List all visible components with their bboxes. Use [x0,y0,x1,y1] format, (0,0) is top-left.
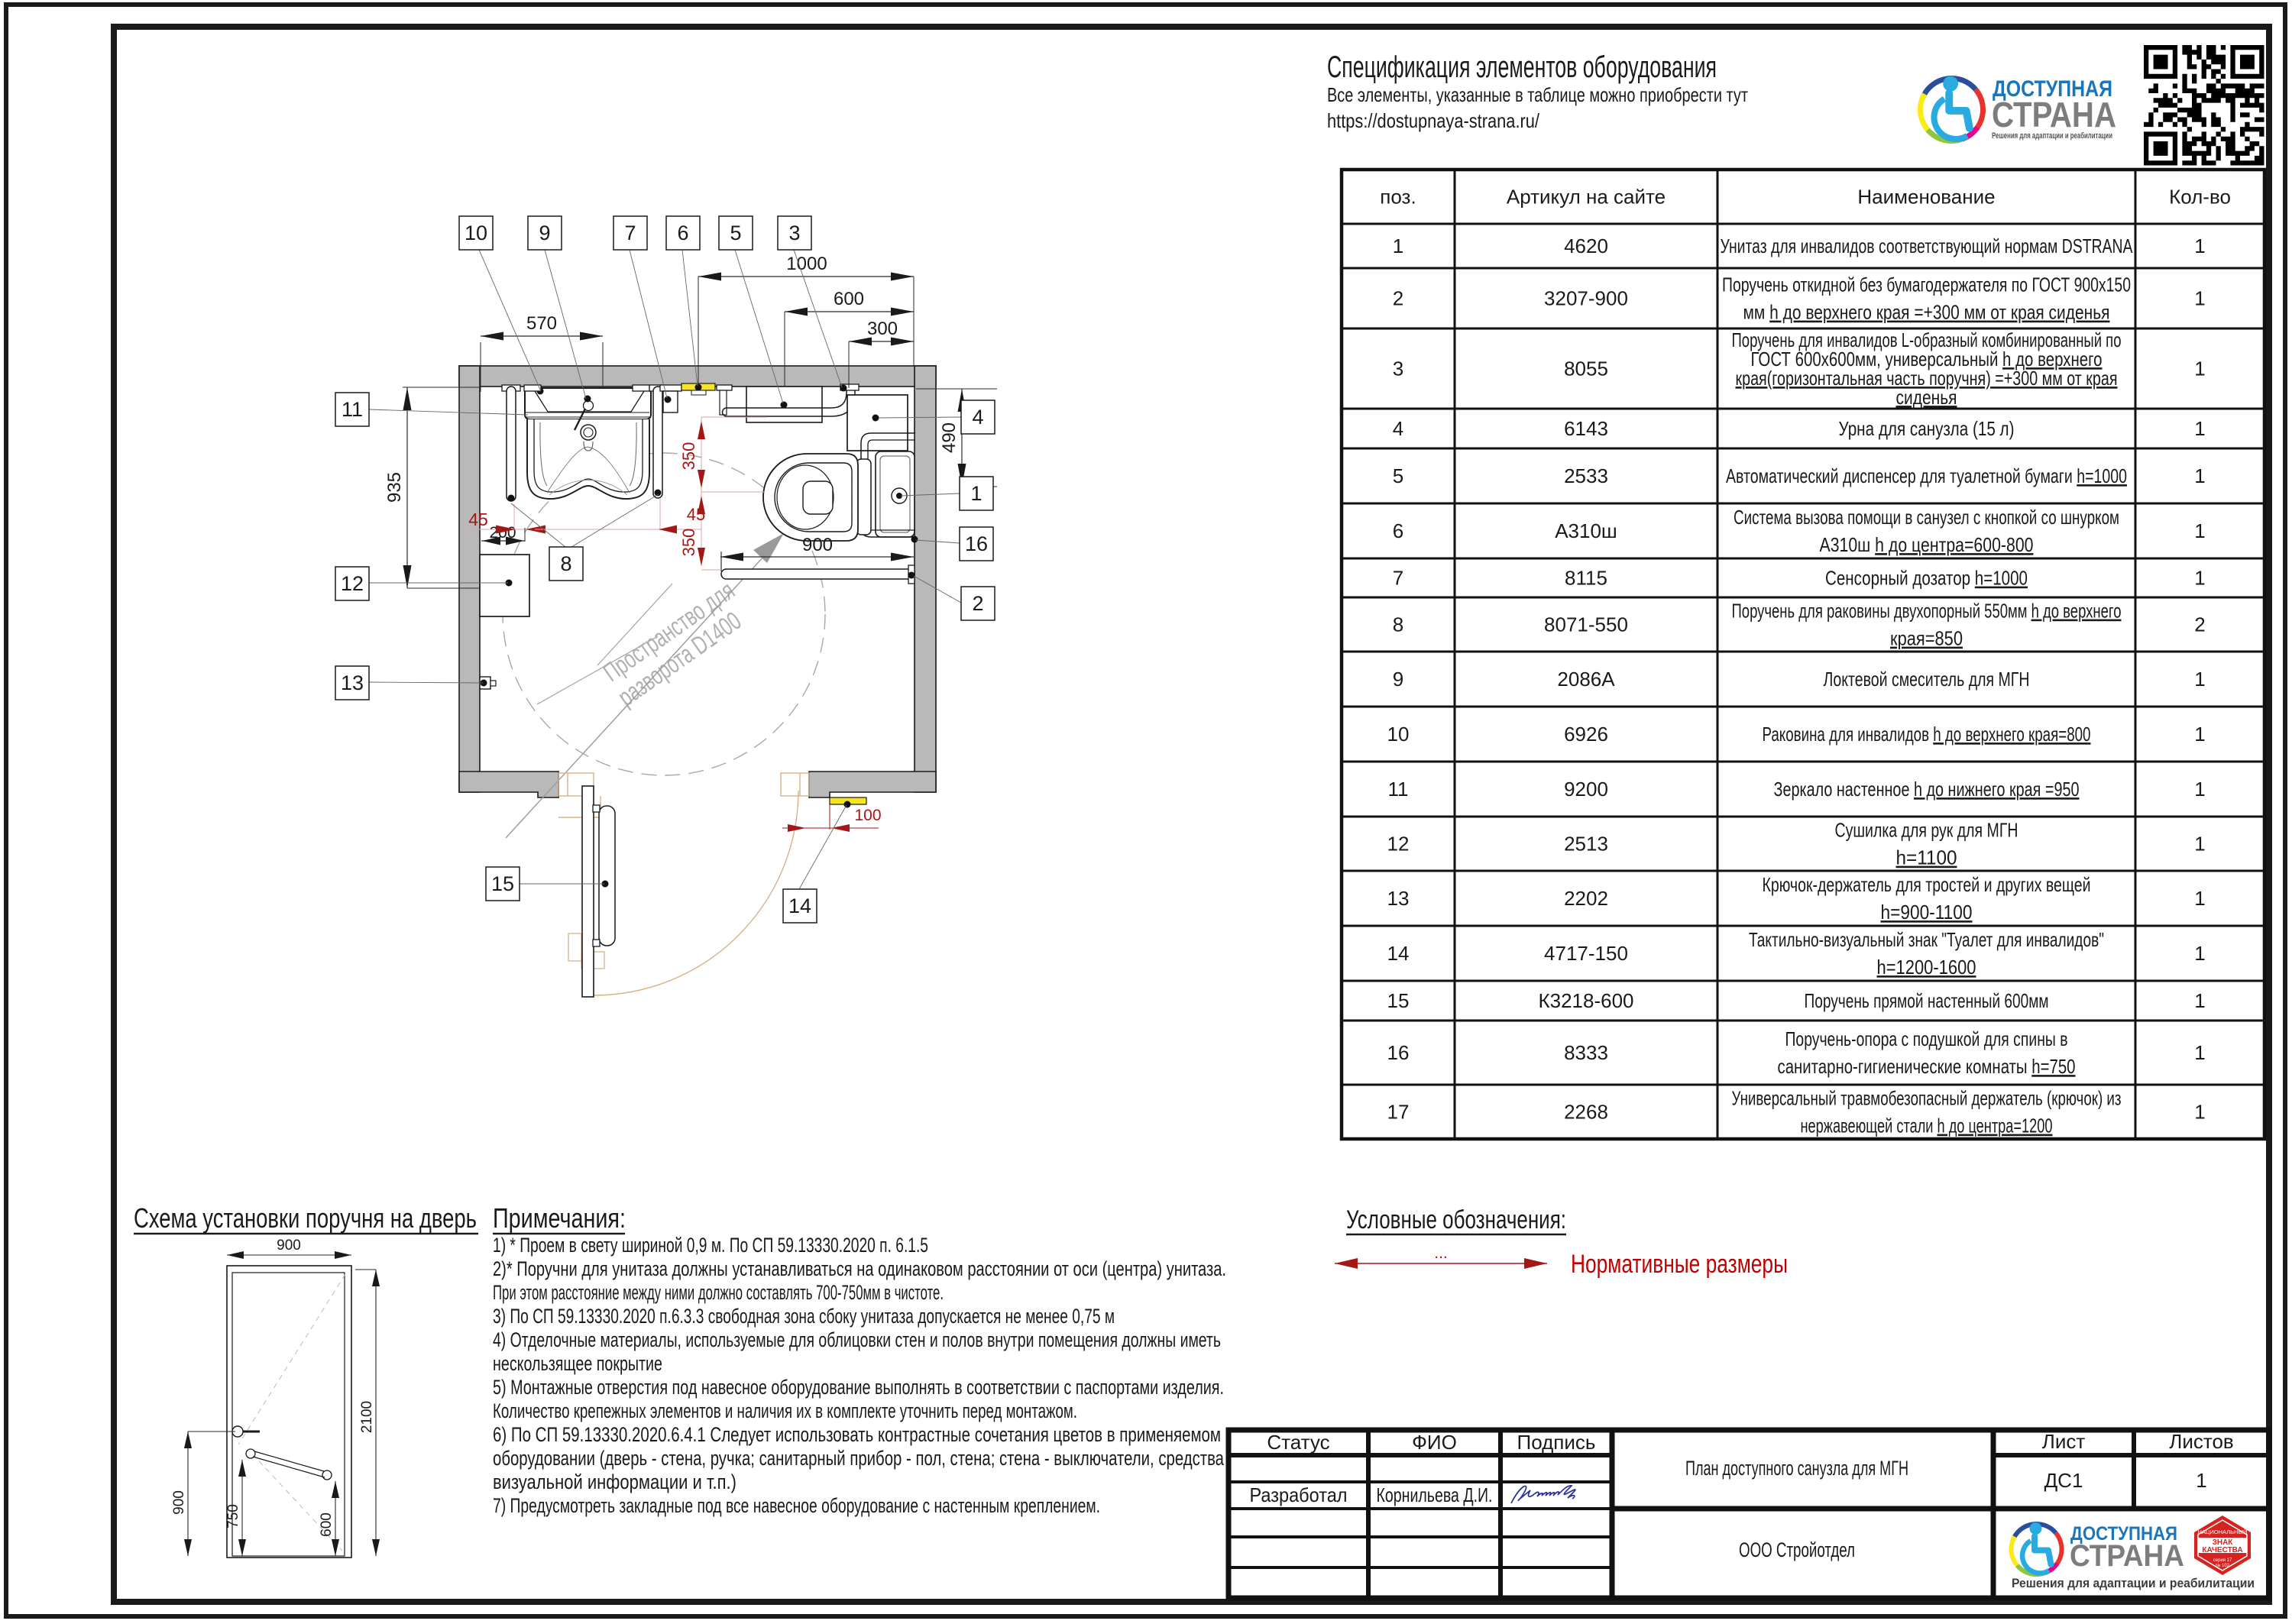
svg-text:8071-550: 8071-550 [1544,613,1628,636]
svg-text:3: 3 [1393,357,1403,380]
svg-text:100: 100 [854,807,881,824]
svg-text:1: 1 [2194,464,2205,487]
svg-text:8: 8 [1393,613,1403,636]
svg-text:3: 3 [788,222,800,244]
svg-text:1: 1 [970,482,982,505]
svg-text:Спецификация элементов оборудо: Спецификация элементов оборудования [1327,50,1717,84]
svg-text:СТРАНА: СТРАНА [2070,1539,2184,1573]
svg-text:45: 45 [687,505,705,524]
svg-text:Поручень-опора с подушкой для: Поручень-опора с подушкой для спины в [1785,1027,2068,1050]
svg-text:2268: 2268 [1564,1101,1608,1124]
svg-text:h=900-1100: h=900-1100 [1881,901,1973,924]
svg-text:490: 490 [939,422,960,453]
svg-text:визуальной информации и т.п.): визуальной информации и т.п.) [493,1470,736,1493]
svg-text:Сенсорный дозатор h=1000: Сенсорный дозатор h=1000 [1825,567,2028,590]
svg-text:Кол-во: Кол-во [2169,186,2231,209]
svg-text:6926: 6926 [1564,723,1608,746]
svg-text:Поручень прямой настенный 600м: Поручень прямой настенный 600мм [1805,989,2049,1012]
svg-text:1: 1 [1393,235,1403,257]
svg-text:900: 900 [171,1490,187,1515]
svg-text:3) По СП 59.13330.2020 п.6.3.: 3) По СП 59.13330.2020 п.6.3.3 свободная… [493,1305,1115,1328]
svg-text:2: 2 [2194,613,2205,636]
svg-text:16: 16 [965,532,988,555]
svg-text:Схема установки поручня на две: Схема установки поручня на дверь [134,1202,477,1234]
svg-text:900: 900 [802,535,833,555]
svg-text:серия 17: серия 17 [2213,1558,2232,1563]
svg-text:7: 7 [624,222,636,244]
svg-text:750: 750 [225,1504,241,1529]
svg-text:1: 1 [2196,1469,2206,1492]
svg-text:2533: 2533 [1564,464,1608,487]
svg-text:КАЧЕСТВА: КАЧЕСТВА [2202,1546,2242,1554]
svg-text:А310ш h до центра=600-800: А310ш h до центра=600-800 [1820,533,2034,556]
svg-text:Нормативные размеры: Нормативные размеры [1571,1250,1788,1279]
svg-text:6: 6 [677,222,688,244]
svg-text:9: 9 [1393,668,1403,691]
svg-text:4) Отделочные материалы, испо: 4) Отделочные материалы, используемые дл… [493,1328,1221,1351]
svg-text:4717-150: 4717-150 [1544,942,1628,965]
svg-text:13: 13 [341,671,364,694]
svg-text:6143: 6143 [1564,417,1608,440]
svg-text:1000: 1000 [786,254,827,274]
svg-text:8: 8 [560,552,571,575]
svg-text:8055: 8055 [1564,357,1608,380]
svg-text:12: 12 [1387,833,1410,856]
svg-text:Локтевой смеситель для МГН: Локтевой смеситель для МГН [1824,668,2030,691]
svg-text:935: 935 [384,472,405,503]
svg-text:https://dostupnaya-strana.ru/: https://dostupnaya-strana.ru/ [1327,109,1540,132]
svg-text:Наименование: Наименование [1857,186,1995,209]
svg-text:2: 2 [1393,287,1403,310]
svg-text:При этом расстояние между ними: При этом расстояние между ними должно со… [493,1281,944,1304]
svg-text:Тактильно-визуальный знак "Туа: Тактильно-визуальный знак "Туалет для ин… [1749,928,2104,951]
svg-text:Зеркало настенное h до нижнего: Зеркало настенное h до нижнего края =950 [1774,778,2080,801]
svg-text:1: 1 [2194,417,2205,440]
svg-text:9: 9 [539,222,550,244]
svg-text:сиденья: сиденья [1896,386,1957,409]
svg-text:1: 1 [2194,1101,2205,1124]
svg-text:Поручень для раковины двухопор: Поручень для раковины двухопорный 550мм … [1732,600,2122,623]
svg-text:Подпись: Подпись [1517,1431,1596,1454]
svg-text:570: 570 [526,313,557,334]
svg-text:края=850: края=850 [1890,627,1963,650]
svg-text:3207-900: 3207-900 [1544,287,1628,310]
svg-text:мм h до верхнего края =+300 м: мм h до верхнего края =+300 мм от края с… [1743,301,2110,324]
svg-text:1: 1 [2194,357,2205,380]
svg-text:Универсальный травмобезопасный: Универсальный травмобезопасный держатель… [1732,1087,2122,1110]
svg-text:1: 1 [2194,668,2205,691]
svg-text:Примечания:: Примечания: [493,1202,626,1234]
svg-text:11: 11 [342,398,363,421]
svg-text:2513: 2513 [1564,833,1608,856]
svg-text:санитарно-гигиенические комнат: санитарно-гигиенические комнаты h=750 [1778,1055,2076,1078]
svg-text:Автоматический диспенсер для т: Автоматический диспенсер для туалетной б… [1726,464,2127,487]
svg-text:8115: 8115 [1565,567,1607,590]
svg-text:СТРАНА: СТРАНА [1992,95,2116,134]
svg-text:Унитаз для инвалидов соответст: Унитаз для инвалидов соответствующий нор… [1721,235,2133,257]
svg-text:Количество крепежных элементов: Количество крепежных элементов и наличия… [493,1399,1077,1422]
svg-text:№ 102: № 102 [2216,1563,2230,1568]
svg-text:h=1200-1600: h=1200-1600 [1877,956,1976,979]
svg-text:10: 10 [465,222,487,244]
svg-text:1: 1 [2194,235,2205,257]
svg-text:1: 1 [2194,723,2205,746]
svg-text:900: 900 [277,1237,301,1254]
svg-text:1: 1 [2194,287,2205,310]
svg-text:Крючок-держатель для тростей и: Крючок-держатель для тростей и других ве… [1763,873,2091,896]
svg-text:9200: 9200 [1564,778,1608,801]
svg-text:11: 11 [1388,778,1409,801]
svg-text:1: 1 [2194,1041,2205,1064]
svg-text:350: 350 [679,529,698,557]
svg-text:600: 600 [834,289,864,309]
svg-text:1: 1 [2194,887,2205,910]
svg-text:1: 1 [2194,942,2205,965]
svg-text:6: 6 [1393,519,1403,542]
svg-text:Корнильева Д.И.: Корнильева Д.И. [1377,1483,1493,1506]
svg-text:1: 1 [2194,778,2205,801]
svg-text:оборудовании (дверь - стена, р: оборудовании (дверь - стена, ручка; сани… [493,1447,1225,1470]
svg-text:12: 12 [341,572,364,595]
svg-text:7: 7 [1393,567,1403,590]
svg-text:Сушилка для рук для МГН: Сушилка для рук для МГН [1835,819,2018,842]
svg-text:4: 4 [1393,417,1403,440]
svg-text:1: 1 [2194,519,2205,542]
svg-text:...: ... [1434,1244,1448,1262]
svg-text:5) Монтажные отверстия под на: 5) Монтажные отверстия под навесное обор… [493,1376,1224,1399]
svg-text:План доступного санузла для МГ: План доступного санузла для МГН [1685,1457,1908,1480]
svg-text:ФИО: ФИО [1412,1431,1457,1454]
svg-text:7) Предусмотреть закладные по: 7) Предусмотреть закладные под все навес… [493,1494,1100,1517]
svg-text:Артикул на сайте: Артикул на сайте [1507,186,1666,209]
svg-text:2: 2 [972,592,983,615]
svg-text:1: 1 [2194,567,2205,590]
svg-text:4620: 4620 [1564,235,1608,257]
svg-text:350: 350 [679,442,698,471]
svg-text:5: 5 [730,222,741,244]
svg-text:А310ш: А310ш [1555,519,1617,542]
svg-text:h=1100: h=1100 [1896,846,1957,869]
svg-text:Решения для адаптации и реабил: Решения для адаптации и реабилитации [2012,1576,2255,1590]
svg-text:Статус: Статус [1267,1431,1329,1454]
svg-text:ООО Стройотдел: ООО Стройотдел [1739,1538,1855,1561]
svg-text:16: 16 [1387,1041,1410,1064]
svg-text:2086А: 2086А [1557,668,1615,691]
svg-text:ДС1: ДС1 [2044,1469,2083,1492]
svg-text:Все элементы, указанные в табл: Все элементы, указанные в таблице можно … [1327,83,1748,106]
svg-text:1: 1 [2194,989,2205,1012]
svg-text:14: 14 [788,894,811,917]
svg-text:45: 45 [468,510,488,529]
svg-text:1: 1 [2194,833,2205,856]
svg-text:300: 300 [867,319,898,339]
svg-text:НАЦИОНАЛЬНЫЙ: НАЦИОНАЛЬНЫЙ [2197,1529,2247,1535]
svg-text:13: 13 [1387,887,1410,910]
svg-text:600: 600 [319,1512,335,1537]
svg-text:Раковина для инвалидов h до ве: Раковина для инвалидов h до верхнего кра… [1763,723,2091,746]
svg-text:2202: 2202 [1564,887,1608,910]
svg-text:4: 4 [972,406,983,429]
svg-text:5: 5 [1393,464,1403,487]
svg-text:17: 17 [1387,1101,1410,1124]
svg-text:2100: 2100 [359,1401,375,1433]
svg-text:Урна для санузла (15 л): Урна для санузла (15 л) [1839,417,2015,440]
svg-text:К3218-600: К3218-600 [1538,989,1633,1012]
svg-text:15: 15 [491,872,514,895]
svg-text:8333: 8333 [1564,1041,1608,1064]
svg-text:Система вызова помощи в санузе: Система вызова помощи в санузел с кнопко… [1734,506,2119,529]
svg-text:поз.: поз. [1380,186,1416,209]
svg-text:2)* Поручни для унитаза должны: 2)* Поручни для унитаза должны устанавли… [493,1257,1226,1280]
svg-text:Поручень откидной без бумагоде: Поручень откидной без бумагодержателя по… [1722,273,2131,296]
svg-text:1) * Проем в свету шириной 0,: 1) * Проем в свету шириной 0,9 м. По СП … [493,1234,928,1257]
svg-text:нержавеющей стали h до центра=: нержавеющей стали h до центра=1200 [1801,1114,2053,1137]
svg-text:15: 15 [1387,989,1410,1012]
svg-text:Условные обозначения:: Условные обозначения: [1346,1205,1566,1234]
svg-text:10: 10 [1387,723,1410,746]
svg-text:14: 14 [1387,942,1410,965]
svg-text:Решения для адаптации и реабил: Решения для адаптации и реабилитации [1992,131,2112,141]
svg-text:6) По СП 59.13330.2020.6.4.1: 6) По СП 59.13330.2020.6.4.1 Следует исп… [493,1423,1221,1446]
svg-text:Лист: Лист [2042,1430,2086,1453]
svg-text:Разработал: Разработал [1250,1483,1348,1506]
svg-text:Листов: Листов [2169,1430,2233,1453]
svg-text:нескользящее покрытие: нескользящее покрытие [493,1352,662,1375]
